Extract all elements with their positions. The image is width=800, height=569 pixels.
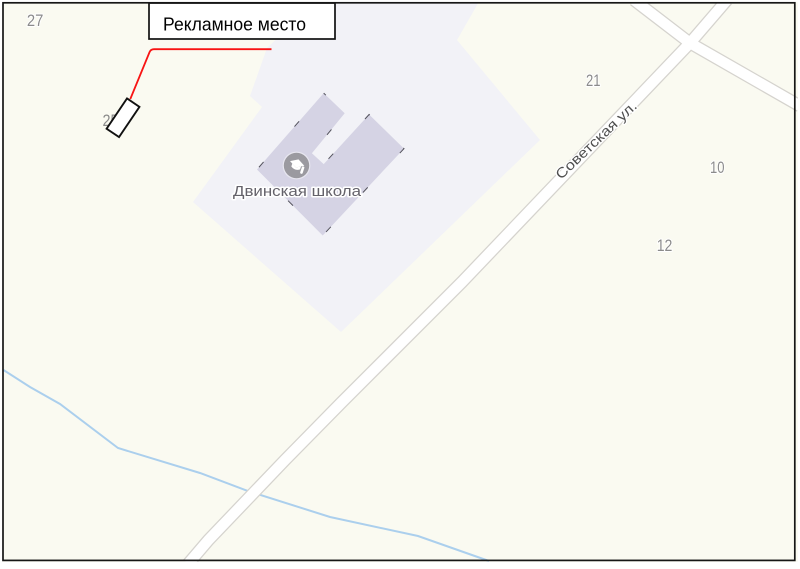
svg-text:Двинская школа: Двинская школа (233, 183, 362, 200)
svg-text:12: 12 (657, 236, 673, 255)
svg-text:10: 10 (710, 158, 725, 177)
svg-text:Рекламное место: Рекламное место (163, 14, 306, 35)
svg-text:27: 27 (27, 11, 44, 30)
svg-text:21: 21 (586, 71, 601, 90)
